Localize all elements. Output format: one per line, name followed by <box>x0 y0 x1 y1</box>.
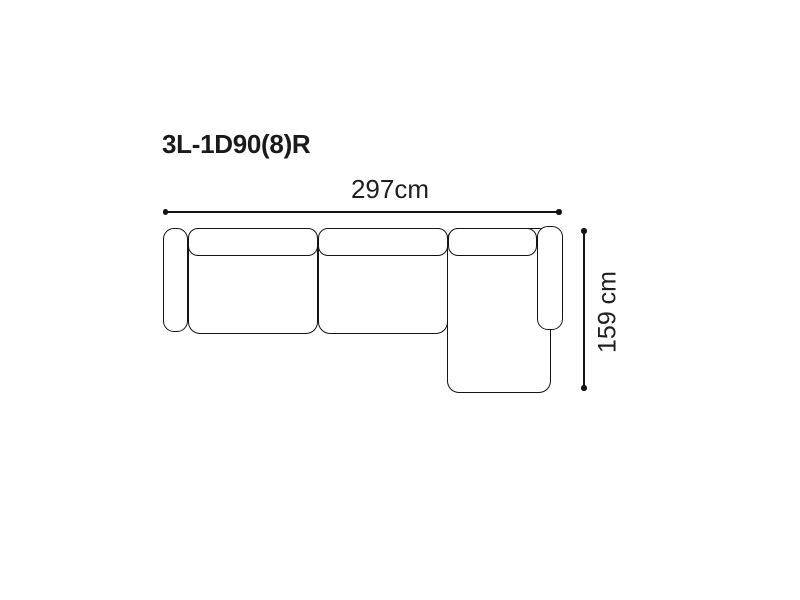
left-armrest <box>163 228 188 332</box>
depth-dimension-line <box>583 231 585 388</box>
width-dimension-line <box>165 211 559 213</box>
product-model-title: 3L-1D90(8)R <box>162 129 310 160</box>
width-dimension-endpoint-left-dot <box>163 209 169 215</box>
depth-dimension-endpoint-top-dot <box>581 228 587 234</box>
width-dimension-endpoint-right-dot <box>556 209 562 215</box>
right-armrest <box>537 226 563 330</box>
sofa-dimension-diagram: 3L-1D90(8)R 297cm 159 cm <box>0 0 800 600</box>
width-dimension-label: 297cm <box>290 174 490 205</box>
backrest-cushion-3 <box>448 228 537 256</box>
backrest-cushion-2 <box>318 228 448 256</box>
depth-dimension-label: 159 cm <box>594 271 623 353</box>
depth-dimension-endpoint-bottom-dot <box>581 385 587 391</box>
backrest-cushion-1 <box>188 228 318 256</box>
